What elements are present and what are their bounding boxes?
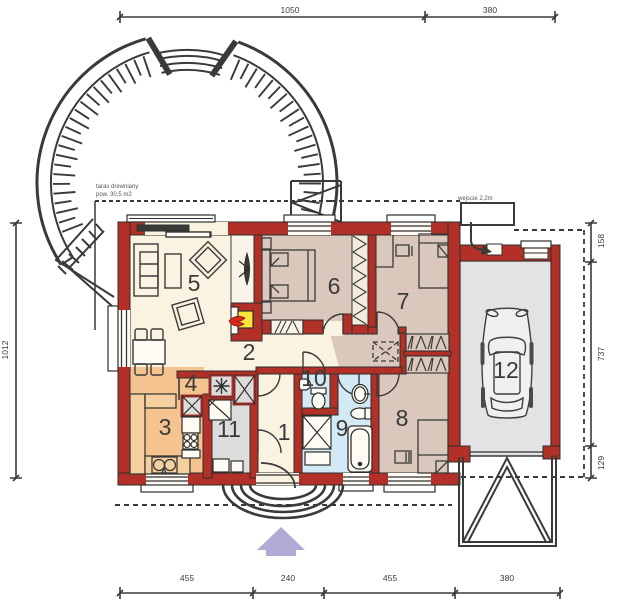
svg-text:11: 11: [217, 416, 241, 442]
svg-text:737: 737: [596, 347, 606, 361]
svg-text:455: 455: [383, 573, 397, 583]
svg-text:455: 455: [180, 573, 194, 583]
svg-text:12: 12: [493, 357, 519, 383]
svg-text:8: 8: [396, 405, 409, 431]
svg-text:wejscie 2,2m: wejscie 2,2m: [457, 196, 493, 202]
svg-text:taras drewniany: taras drewniany: [96, 184, 138, 190]
svg-text:158: 158: [596, 234, 606, 248]
svg-text:380: 380: [500, 573, 514, 583]
svg-text:pow. 30,5 m2: pow. 30,5 m2: [96, 192, 132, 198]
svg-text:1012: 1012: [0, 340, 10, 359]
svg-text:5: 5: [188, 270, 201, 296]
svg-text:3: 3: [159, 414, 172, 440]
svg-text:1: 1: [278, 419, 291, 445]
svg-text:1050: 1050: [281, 5, 300, 15]
svg-text:4: 4: [185, 370, 198, 396]
svg-text:129: 129: [596, 456, 606, 470]
svg-text:7: 7: [397, 288, 410, 314]
svg-text:10: 10: [301, 365, 327, 391]
svg-text:6: 6: [328, 273, 341, 299]
svg-text:2: 2: [243, 339, 256, 365]
svg-text:240: 240: [281, 573, 295, 583]
svg-text:380: 380: [483, 5, 497, 15]
svg-text:9: 9: [336, 415, 349, 441]
